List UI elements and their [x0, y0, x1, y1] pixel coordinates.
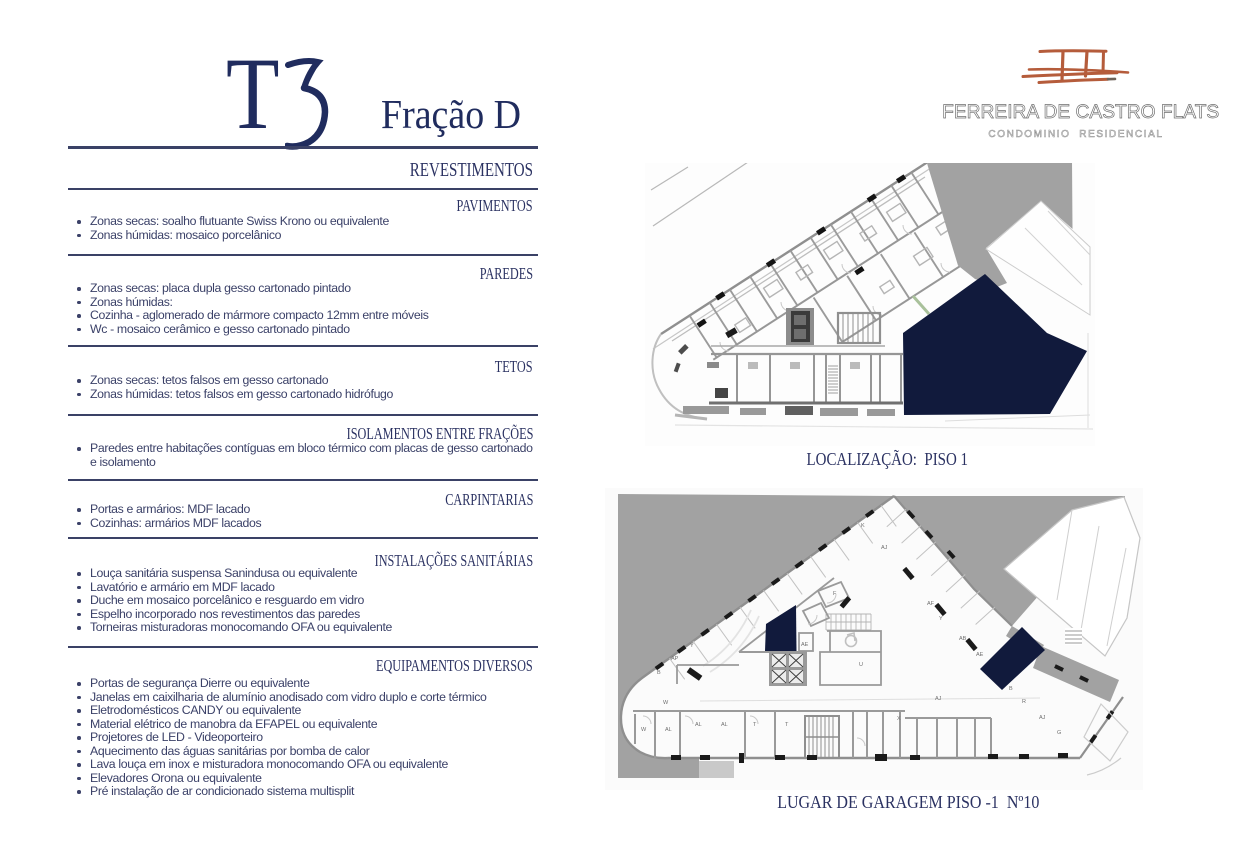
- svg-text:AE: AE: [976, 652, 984, 658]
- svg-text:AB: AB: [959, 636, 967, 642]
- svg-text:W: W: [641, 727, 647, 733]
- svg-text:G: G: [1057, 730, 1061, 736]
- svg-text:B: B: [1009, 686, 1013, 692]
- svg-text:Y: Y: [690, 643, 694, 649]
- svg-text:AP: AP: [671, 656, 679, 662]
- svg-text:K: K: [861, 523, 865, 529]
- svg-text:AL: AL: [665, 727, 672, 733]
- svg-text:Y: Y: [939, 616, 943, 622]
- svg-text:AE: AE: [801, 642, 809, 648]
- svg-text:B: B: [657, 670, 661, 676]
- svg-text:AJ: AJ: [935, 696, 942, 702]
- svg-text:AJ: AJ: [881, 545, 888, 551]
- svg-text:AJ: AJ: [1039, 715, 1046, 721]
- svg-text:X: X: [897, 716, 901, 722]
- svg-text:AL: AL: [721, 722, 728, 728]
- svg-text:R: R: [1022, 699, 1026, 705]
- svg-text:U: U: [859, 662, 863, 668]
- svg-text:AL: AL: [695, 722, 702, 728]
- svg-text:W: W: [663, 700, 669, 706]
- svg-text:AF: AF: [927, 601, 935, 607]
